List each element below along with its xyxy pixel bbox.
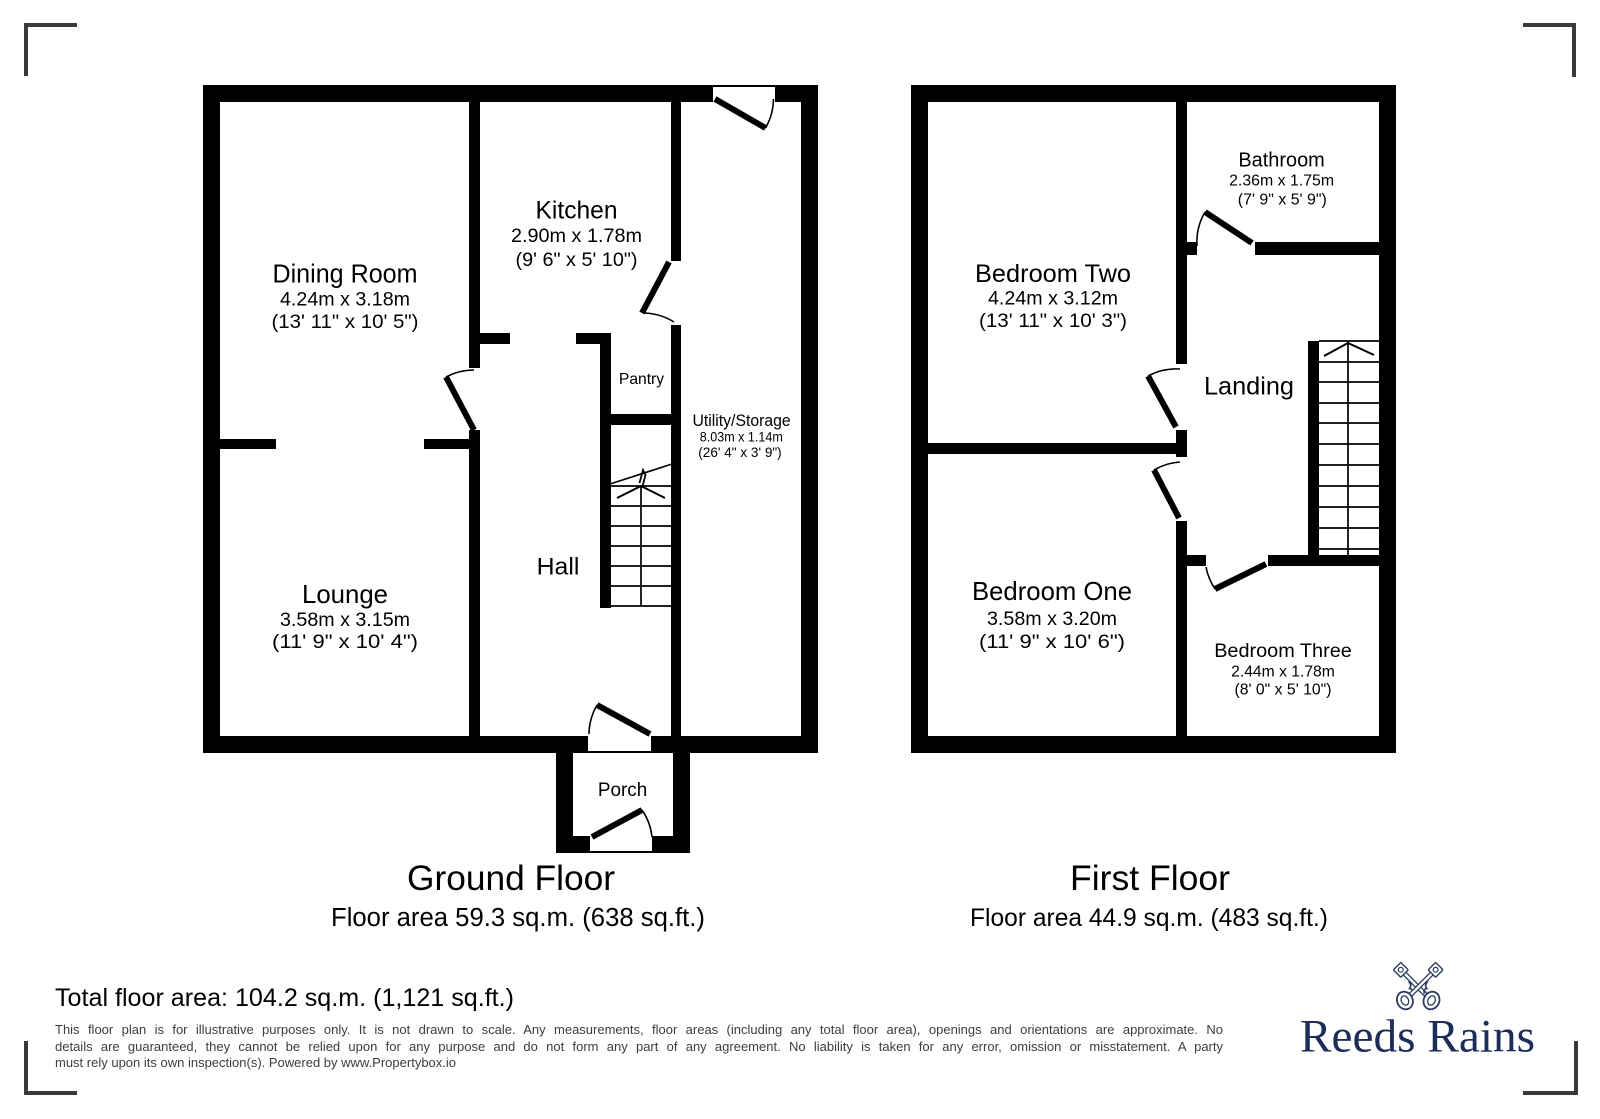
svg-text:Reeds Rains: Reeds Rains xyxy=(1300,1011,1535,1063)
svg-text:3.58m x 3.20m: 3.58m x 3.20m xyxy=(987,608,1117,630)
svg-text:Utility/Storage: Utility/Storage xyxy=(693,411,791,430)
svg-text:Bedroom Two: Bedroom Two xyxy=(975,260,1131,288)
svg-text:Kitchen: Kitchen xyxy=(536,198,618,225)
svg-text:(8' 0" x 5' 10"): (8' 0" x 5' 10") xyxy=(1235,682,1332,699)
svg-text:Ground Floor: Ground Floor xyxy=(407,859,615,898)
svg-text:(26' 4" x 3' 9"): (26' 4" x 3' 9") xyxy=(698,445,781,460)
svg-text:(11' 9" x 10' 6"): (11' 9" x 10' 6") xyxy=(979,631,1125,653)
svg-text:Floor area 59.3 sq.m. (638 sq.: Floor area 59.3 sq.m. (638 sq.ft.) xyxy=(331,904,705,932)
svg-text:4.24m x 3.18m: 4.24m x 3.18m xyxy=(280,289,410,311)
svg-text:(13' 11" x 10' 5"): (13' 11" x 10' 5") xyxy=(272,311,419,333)
svg-text:2.44m x 1.78m: 2.44m x 1.78m xyxy=(1231,664,1335,681)
svg-text:(7' 9" x 5' 9"): (7' 9" x 5' 9") xyxy=(1238,192,1327,209)
svg-text:2.90m x 1.78m: 2.90m x 1.78m xyxy=(511,225,642,247)
svg-text:Lounge: Lounge xyxy=(302,581,388,609)
svg-text:Hall: Hall xyxy=(537,555,580,581)
svg-text:Bedroom One: Bedroom One xyxy=(972,578,1132,606)
svg-text:(9' 6" x 5' 10"): (9' 6" x 5' 10") xyxy=(516,249,638,271)
svg-text:(11' 9" x 10' 4"): (11' 9" x 10' 4") xyxy=(272,631,418,653)
svg-text:First Floor: First Floor xyxy=(1070,858,1230,898)
svg-text:2.36m x 1.75m: 2.36m x 1.75m xyxy=(1229,173,1334,190)
svg-text:Dining Room: Dining Room xyxy=(273,261,418,289)
svg-text:Bathroom: Bathroom xyxy=(1238,150,1324,172)
svg-text:Pantry: Pantry xyxy=(619,371,664,388)
svg-text:Porch: Porch xyxy=(598,779,647,801)
svg-text:Floor area 44.9 sq.m. (483 sq.: Floor area 44.9 sq.m. (483 sq.ft.) xyxy=(970,904,1328,932)
svg-text:(13' 11" x 10' 3"): (13' 11" x 10' 3") xyxy=(979,310,1127,332)
svg-text:8.03m x 1.14m: 8.03m x 1.14m xyxy=(700,429,783,444)
svg-text:Bedroom Three: Bedroom Three xyxy=(1214,640,1352,662)
svg-text:Total floor area: 104.2 sq.m.: Total floor area: 104.2 sq.m. (1,121 sq.… xyxy=(55,984,514,1012)
svg-text:Landing: Landing xyxy=(1204,373,1294,401)
svg-text:3.58m x 3.15m: 3.58m x 3.15m xyxy=(280,609,410,631)
svg-text:4.24m x 3.12m: 4.24m x 3.12m xyxy=(988,288,1118,310)
